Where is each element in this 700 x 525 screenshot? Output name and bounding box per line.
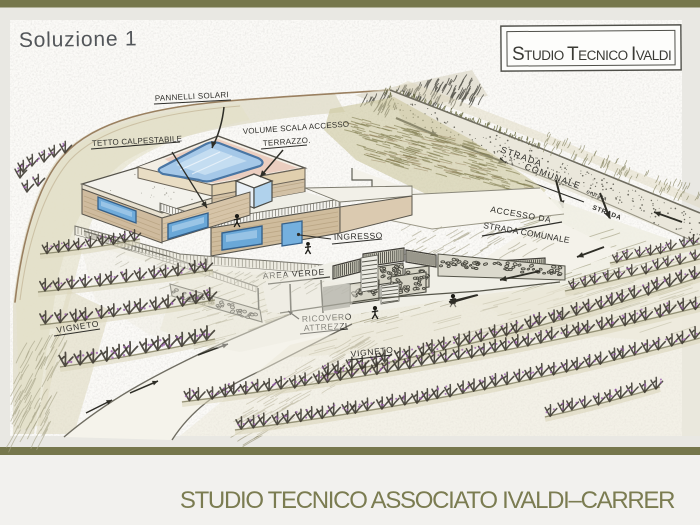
svg-text:STUDIO TECNICO IVALDI: STUDIO TECNICO IVALDI	[512, 44, 672, 65]
svg-text:INGRESSO: INGRESSO	[334, 230, 383, 242]
svg-text:Soluzione 1: Soluzione 1	[19, 27, 138, 52]
